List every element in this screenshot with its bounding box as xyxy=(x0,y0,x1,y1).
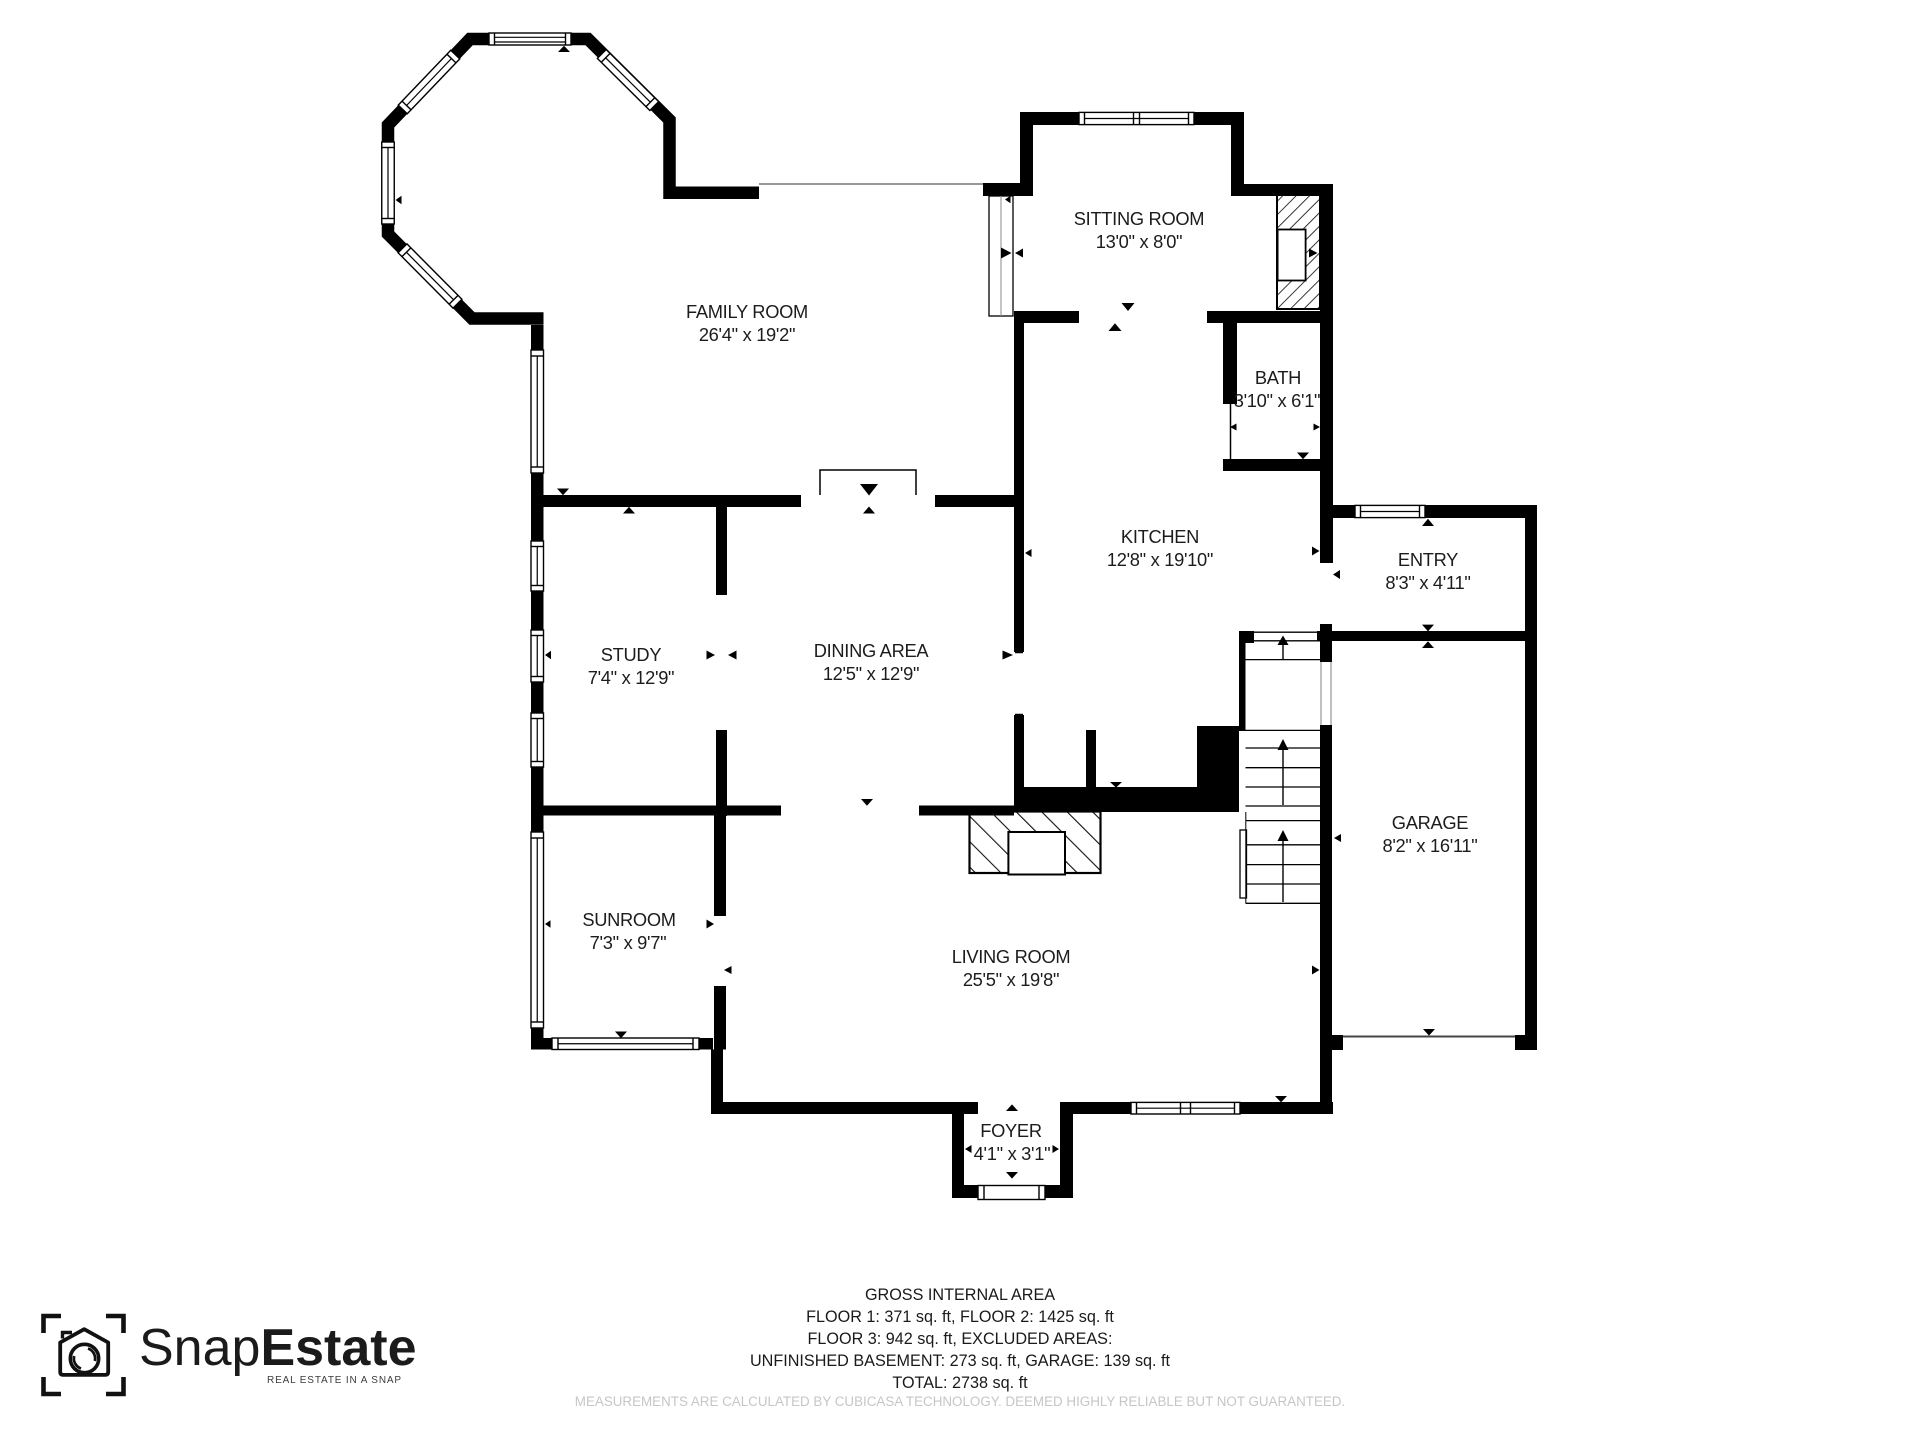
svg-text:25'5" x 19'8": 25'5" x 19'8" xyxy=(963,969,1059,990)
svg-text:GARAGE: GARAGE xyxy=(1392,812,1469,833)
svg-text:LIVING ROOM: LIVING ROOM xyxy=(952,946,1071,967)
svg-text:FAMILY ROOM: FAMILY ROOM xyxy=(686,301,808,322)
svg-text:MEASUREMENTS ARE CALCULATED BY: MEASUREMENTS ARE CALCULATED BY CUBICASA … xyxy=(575,1394,1345,1409)
svg-text:TOTAL: 2738 sq. ft: TOTAL: 2738 sq. ft xyxy=(892,1374,1028,1392)
svg-text:SnapEstate: SnapEstate xyxy=(139,1319,417,1377)
svg-text:FLOOR 1: 371 sq. ft, FLOOR 2:: FLOOR 1: 371 sq. ft, FLOOR 2: 1425 sq. f… xyxy=(806,1308,1114,1326)
svg-text:13'0" x 8'0": 13'0" x 8'0" xyxy=(1096,231,1183,252)
svg-text:12'5" x 12'9": 12'5" x 12'9" xyxy=(823,663,919,684)
svg-text:8'2" x 16'11": 8'2" x 16'11" xyxy=(1382,835,1477,856)
svg-text:SUNROOM: SUNROOM xyxy=(582,909,675,930)
svg-text:REAL ESTATE IN A SNAP: REAL ESTATE IN A SNAP xyxy=(267,1375,402,1386)
svg-text:4'1" x 3'1": 4'1" x 3'1" xyxy=(974,1143,1051,1164)
svg-text:ENTRY: ENTRY xyxy=(1398,549,1458,570)
svg-text:DINING AREA: DINING AREA xyxy=(814,640,930,661)
svg-text:3'10" x 6'1": 3'10" x 6'1" xyxy=(1234,390,1321,411)
svg-text:7'4" x 12'9": 7'4" x 12'9" xyxy=(588,667,675,688)
svg-text:GROSS INTERNAL AREA: GROSS INTERNAL AREA xyxy=(865,1286,1055,1304)
svg-text:FOYER: FOYER xyxy=(980,1120,1042,1141)
svg-text:FLOOR 3: 942 sq. ft, EXCLUDED: FLOOR 3: 942 sq. ft, EXCLUDED AREAS: xyxy=(808,1330,1113,1348)
svg-text:SITTING ROOM: SITTING ROOM xyxy=(1074,208,1204,229)
svg-text:KITCHEN: KITCHEN xyxy=(1121,526,1199,547)
svg-text:BATH: BATH xyxy=(1255,367,1301,388)
svg-text:UNFINISHED BASEMENT: 273 sq. f: UNFINISHED BASEMENT: 273 sq. ft, GARAGE:… xyxy=(750,1352,1171,1370)
svg-text:7'3" x 9'7": 7'3" x 9'7" xyxy=(590,932,667,953)
svg-text:12'8" x 19'10": 12'8" x 19'10" xyxy=(1107,549,1213,570)
svg-text:26'4" x 19'2": 26'4" x 19'2" xyxy=(699,324,795,345)
svg-text:8'3" x 4'11": 8'3" x 4'11" xyxy=(1385,572,1470,593)
svg-text:STUDY: STUDY xyxy=(601,644,662,665)
